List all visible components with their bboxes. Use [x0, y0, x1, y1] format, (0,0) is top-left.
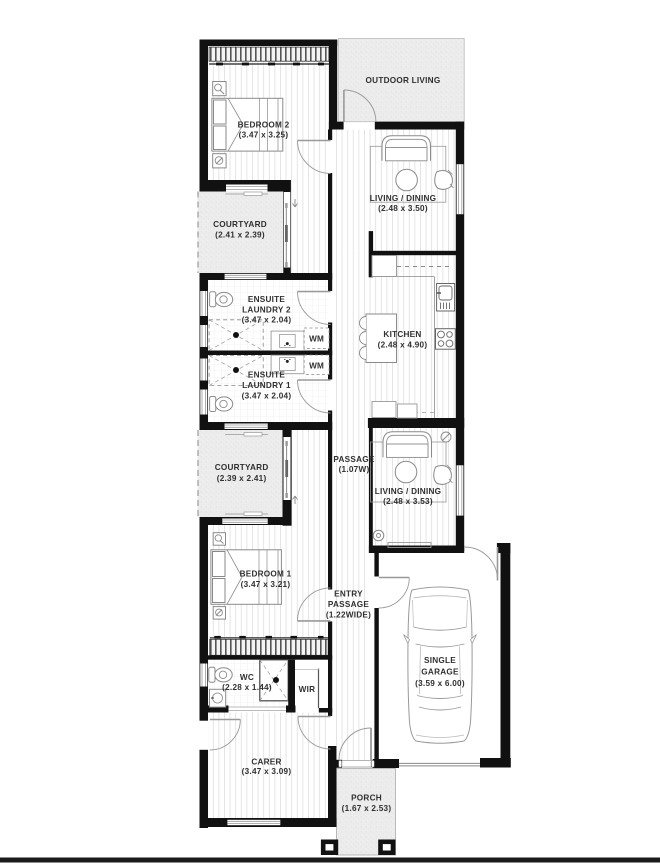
- svg-text:ENTRY: ENTRY: [334, 590, 363, 599]
- svg-text:WM: WM: [309, 335, 324, 344]
- svg-text:(2.41 x 2.39): (2.41 x 2.39): [215, 231, 265, 240]
- svg-text:ENSUITE: ENSUITE: [248, 295, 286, 304]
- svg-text:BEDROOM 1: BEDROOM 1: [240, 570, 292, 579]
- svg-text:ENSUITE: ENSUITE: [248, 371, 286, 380]
- svg-text:PASSAGE: PASSAGE: [333, 455, 374, 464]
- svg-text:(3.47 x 3.21): (3.47 x 3.21): [241, 580, 291, 589]
- svg-text:(2.48 x 4.90): (2.48 x 4.90): [378, 341, 428, 350]
- svg-text:(2.39 x 2.41): (2.39 x 2.41): [217, 474, 267, 483]
- svg-text:LIVING / DINING: LIVING / DINING: [375, 487, 442, 496]
- svg-text:GARAGE: GARAGE: [421, 668, 459, 677]
- svg-text:WC: WC: [240, 673, 254, 682]
- svg-text:WIR: WIR: [299, 685, 316, 694]
- svg-text:LAUNDRY 2: LAUNDRY 2: [242, 306, 291, 315]
- svg-text:(3.47 x 3.25): (3.47 x 3.25): [239, 131, 289, 140]
- svg-text:(3.59 x 6.00): (3.59 x 6.00): [415, 679, 465, 688]
- svg-text:KITCHEN: KITCHEN: [383, 330, 421, 339]
- svg-text:(2.48 x 3.50): (2.48 x 3.50): [378, 204, 428, 213]
- svg-text:LAUNDRY 1: LAUNDRY 1: [242, 381, 291, 390]
- svg-text:(1.22WIDE): (1.22WIDE): [326, 611, 371, 620]
- svg-text:(1.07W): (1.07W): [339, 465, 370, 474]
- svg-text:BEDROOM 2: BEDROOM 2: [238, 121, 290, 130]
- svg-text:(2.28 x 1.44): (2.28 x 1.44): [222, 683, 272, 692]
- svg-text:COURTYARD: COURTYARD: [213, 220, 267, 229]
- svg-text:PASSAGE: PASSAGE: [328, 600, 369, 609]
- svg-text:CARER: CARER: [251, 758, 281, 767]
- svg-text:SINGLE: SINGLE: [424, 656, 456, 665]
- svg-text:COURTYARD: COURTYARD: [215, 463, 269, 472]
- svg-text:(2.48 x 3.53): (2.48 x 3.53): [383, 497, 433, 506]
- svg-text:(3.47 x 2.04): (3.47 x 2.04): [242, 316, 292, 325]
- svg-text:(1.67 x 2.53): (1.67 x 2.53): [342, 804, 392, 813]
- svg-text:OUTDOOR LIVING: OUTDOOR LIVING: [366, 76, 441, 85]
- svg-text:(3.47 x 3.09): (3.47 x 3.09): [242, 767, 292, 776]
- svg-text:WM: WM: [309, 361, 324, 370]
- svg-text:LIVING / DINING: LIVING / DINING: [370, 194, 437, 203]
- svg-text:(3.47 x 2.04): (3.47 x 2.04): [242, 392, 292, 401]
- svg-text:PORCH: PORCH: [351, 794, 382, 803]
